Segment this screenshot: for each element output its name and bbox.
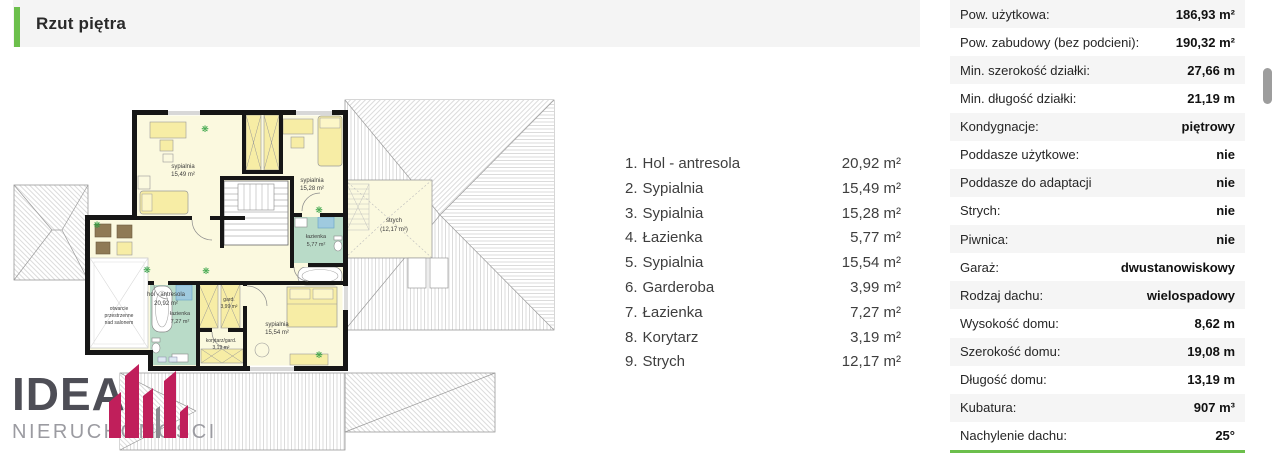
- spec-label: Garaż:: [960, 260, 999, 275]
- room-garderoba: [199, 284, 243, 363]
- label-sypialnia-c-area: 15,54 m²: [265, 330, 289, 336]
- green-accent-bar: [14, 7, 20, 47]
- label-strych: strych: [386, 218, 402, 224]
- spec-value: piętrowy: [1182, 119, 1235, 134]
- spec-row: Pow. zabudowy (bez podcieni):190,32 m²: [950, 28, 1245, 56]
- room-label: Sypialnia: [643, 205, 842, 222]
- label-korytarz: korytarz/gard.: [206, 338, 237, 344]
- room-label: Garderoba: [643, 279, 851, 296]
- room-number: 4.: [625, 229, 638, 246]
- label-sypialnia-a: sypialnia: [171, 164, 195, 170]
- room-label: Sypialnia: [643, 254, 842, 271]
- scrollbar-thumb[interactable]: [1263, 68, 1272, 104]
- spec-row: Piwnica:nie: [950, 225, 1245, 253]
- spec-value: 25°: [1215, 428, 1235, 443]
- room-label: Strych: [643, 353, 842, 370]
- label-korytarz-area: 3,19 m²: [213, 345, 230, 351]
- label-sypialnia-a-area: 15,49 m²: [171, 172, 195, 178]
- svg-text:❋: ❋: [143, 265, 151, 275]
- spec-value: 8,62 m: [1195, 316, 1235, 331]
- label-hol-area: 20,92 m²: [154, 301, 178, 307]
- spec-row: Kubatura:907 m³: [950, 394, 1245, 422]
- label-void-3: nad salonem: [105, 320, 134, 326]
- spec-row: Szerokość domu:19,08 m: [950, 338, 1245, 366]
- svg-text:❋: ❋: [93, 220, 101, 230]
- spec-value: nie: [1216, 203, 1235, 218]
- room-area: 3,99 m²: [850, 279, 901, 296]
- spec-label: Wysokość domu:: [960, 316, 1059, 331]
- label-strych-area: (12,17 m²): [380, 227, 408, 233]
- spec-label: Kubatura:: [960, 400, 1016, 415]
- spec-row: Nachylenie dachu:25°: [950, 422, 1245, 450]
- room-area: 20,92 m²: [842, 155, 901, 172]
- spec-label: Poddasze do adaptacji: [960, 175, 1092, 190]
- label-lazienka-a-area: 5,77 m²: [307, 242, 326, 248]
- room-list-item: 4.Łazienka5,77 m²: [625, 229, 901, 254]
- staircase: [224, 181, 288, 245]
- spec-value: 190,32 m²: [1176, 35, 1235, 50]
- spec-value: 907 m³: [1194, 400, 1235, 415]
- brand-logo: IDEA NIERUCHOMOŚCI: [12, 368, 217, 442]
- room-area: 3,19 m²: [850, 329, 901, 346]
- spec-value: 19,08 m: [1187, 344, 1235, 359]
- room-list: 1.Hol - antresola20,92 m²2.Sypialnia15,4…: [625, 155, 901, 378]
- room-list-item: 5.Sypialnia15,54 m²: [625, 254, 901, 279]
- svg-text:❋: ❋: [202, 266, 210, 276]
- spec-label: Poddasze użytkowe:: [960, 147, 1079, 162]
- svg-text:❋: ❋: [315, 205, 323, 215]
- specs-sidebar: Pow. użytkowa:186,93 m²Pow. zabudowy (be…: [950, 0, 1245, 453]
- spec-row: Poddasze do adaptacjinie: [950, 169, 1245, 197]
- spec-label: Piwnica:: [960, 232, 1008, 247]
- room-area: 12,17 m²: [842, 353, 901, 370]
- room-number: 3.: [625, 205, 638, 222]
- spec-value: nie: [1216, 232, 1235, 247]
- room-list-item: 1.Hol - antresola20,92 m²: [625, 155, 901, 180]
- page: Rzut piętra: [0, 0, 1280, 453]
- spec-row: Strych:nie: [950, 197, 1245, 225]
- spec-label: Kondygnacje:: [960, 119, 1039, 134]
- room-list-item: 2.Sypialnia15,49 m²: [625, 180, 901, 205]
- room-list-item: 8.Korytarz3,19 m²: [625, 329, 901, 354]
- room-label: Łazienka: [643, 229, 851, 246]
- room-void: [90, 258, 148, 348]
- spec-row: Min. szerokość działki:27,66 m: [950, 56, 1245, 84]
- room-number: 1.: [625, 155, 638, 172]
- logo-buildings-icon: [109, 354, 195, 438]
- roof-left: [14, 185, 88, 280]
- room-number: 6.: [625, 279, 638, 296]
- room-number: 5.: [625, 254, 638, 271]
- room-area: 15,54 m²: [842, 254, 901, 271]
- label-void-1: otwarcie: [110, 306, 129, 312]
- room-list-item: 7.Łazienka7,27 m²: [625, 304, 901, 329]
- room-list-item: 9.Strych12,17 m²: [625, 353, 901, 378]
- label-lazienka-a: łazienka: [306, 234, 327, 240]
- svg-text:❋: ❋: [201, 124, 209, 134]
- spec-label: Pow. użytkowa:: [960, 7, 1050, 22]
- spec-row: Pow. użytkowa:186,93 m²: [950, 0, 1245, 28]
- spec-value: 13,19 m: [1187, 372, 1235, 387]
- room-number: 2.: [625, 180, 638, 197]
- spec-label: Strych:: [960, 203, 1000, 218]
- room-label: Korytarz: [643, 329, 851, 346]
- spec-row: Rodzaj dachu:wielospadowy: [950, 281, 1245, 309]
- spec-value: wielospadowy: [1147, 288, 1235, 303]
- room-area: 7,27 m²: [850, 304, 901, 321]
- section-header: Rzut piętra: [13, 0, 920, 47]
- room-area: 5,77 m²: [850, 229, 901, 246]
- spec-row: Kondygnacje:piętrowy: [950, 113, 1245, 141]
- label-gard: gard.: [223, 297, 234, 303]
- svg-text:❋: ❋: [315, 350, 323, 360]
- label-sypialnia-b-area: 15,28 m²: [300, 186, 324, 192]
- spec-row: Długość domu:13,19 m: [950, 366, 1245, 394]
- spec-label: Długość domu:: [960, 372, 1047, 387]
- spec-label: Nachylenie dachu:: [960, 428, 1067, 443]
- spec-value: dwustanowiskowy: [1121, 260, 1235, 275]
- room-number: 8.: [625, 329, 638, 346]
- room-area: 15,49 m²: [842, 180, 901, 197]
- room-list-item: 3.Sypialnia15,28 m²: [625, 205, 901, 230]
- spec-value: 186,93 m²: [1176, 7, 1235, 22]
- room-label: Sypialnia: [643, 180, 842, 197]
- spec-value: nie: [1216, 147, 1235, 162]
- spec-label: Min. długość działki:: [960, 91, 1076, 106]
- label-hol: hol - antresola: [147, 292, 186, 298]
- spec-value: 27,66 m: [1187, 63, 1235, 78]
- label-sypialnia-c: sypialnia: [265, 322, 289, 328]
- page-title: Rzut piętra: [36, 0, 126, 47]
- spec-value: 21,19 m: [1187, 91, 1235, 106]
- label-lazienka-b: łazienka: [170, 311, 191, 317]
- room-number: 9.: [625, 353, 638, 370]
- room-label: Łazienka: [643, 304, 851, 321]
- spec-label: Szerokość domu:: [960, 344, 1060, 359]
- label-sypialnia-b: sypialnia: [300, 178, 324, 184]
- label-void-2: przestrzenne: [105, 313, 134, 319]
- spec-label: Rodzaj dachu:: [960, 288, 1043, 303]
- label-gard-area: 3,99 m²: [221, 304, 238, 310]
- spec-row: Wysokość domu:8,62 m: [950, 309, 1245, 337]
- label-lazienka-b-area: 7,27 m²: [171, 319, 190, 325]
- room-label: Hol - antresola: [643, 155, 842, 172]
- spec-row: Poddasze użytkowe:nie: [950, 141, 1245, 169]
- spec-label: Min. szerokość działki:: [960, 63, 1090, 78]
- spec-value: nie: [1216, 175, 1235, 190]
- spec-label: Pow. zabudowy (bez podcieni):: [960, 35, 1139, 50]
- room-bathroom-a: [292, 215, 345, 265]
- room-area: 15,28 m²: [842, 205, 901, 222]
- room-list-item: 6.Garderoba3,99 m²: [625, 279, 901, 304]
- spec-row: Garaż:dwustanowiskowy: [950, 253, 1245, 281]
- room-number: 7.: [625, 304, 638, 321]
- spec-row: Min. długość działki:21,19 m: [950, 84, 1245, 112]
